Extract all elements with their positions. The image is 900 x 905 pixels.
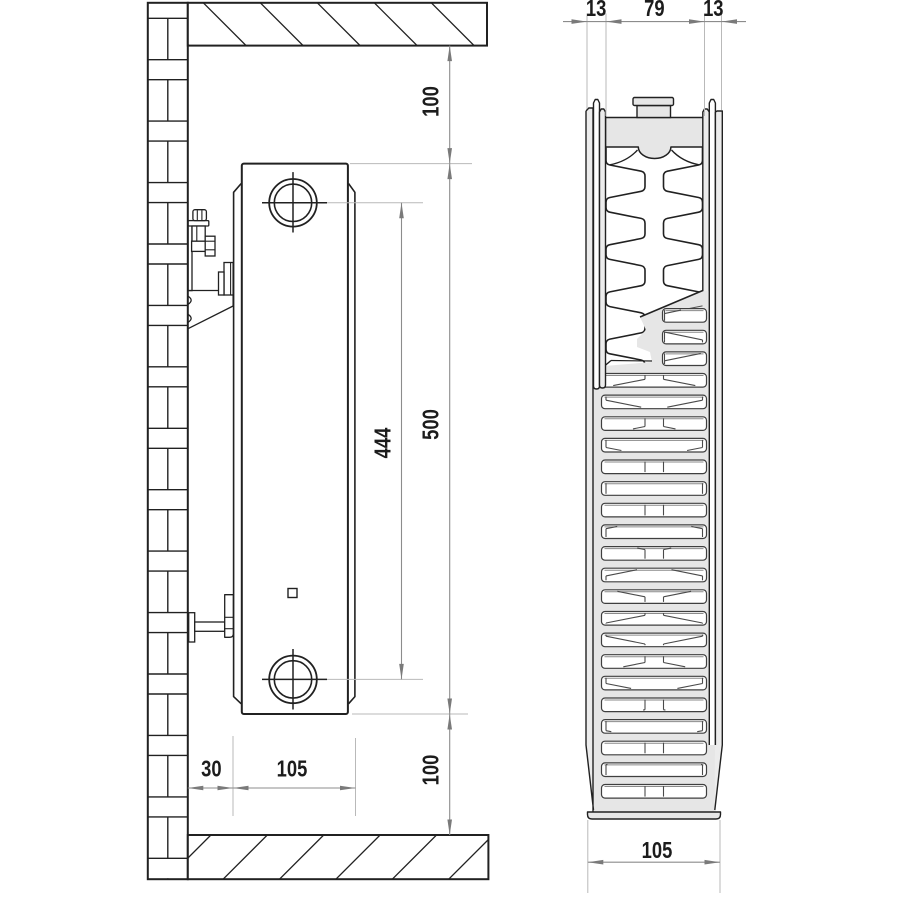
- svg-text:500: 500: [419, 409, 444, 440]
- svg-text:105: 105: [277, 757, 308, 782]
- svg-text:444: 444: [371, 427, 396, 458]
- svg-text:13: 13: [703, 0, 723, 22]
- svg-text:100: 100: [419, 755, 444, 786]
- svg-text:13: 13: [586, 0, 606, 22]
- svg-text:79: 79: [644, 0, 664, 22]
- svg-text:100: 100: [419, 86, 444, 117]
- svg-text:105: 105: [642, 838, 673, 863]
- svg-text:30: 30: [201, 757, 221, 782]
